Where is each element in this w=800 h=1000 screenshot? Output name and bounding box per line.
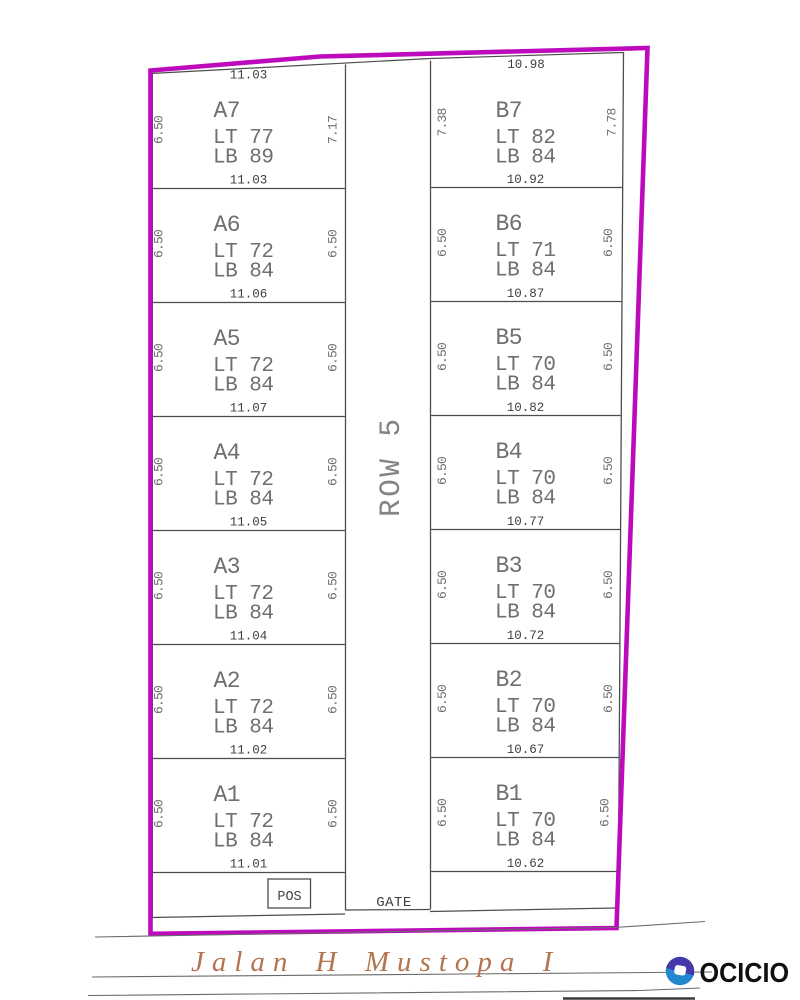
- svg-text:10.67: 10.67: [507, 743, 545, 757]
- svg-text:11.03: 11.03: [230, 174, 268, 188]
- svg-text:10.87: 10.87: [507, 287, 545, 301]
- svg-text:LB 84: LB 84: [495, 147, 556, 170]
- svg-text:6.50: 6.50: [601, 457, 616, 485]
- svg-text:A3: A3: [214, 554, 241, 580]
- svg-text:LB 89: LB 89: [213, 147, 274, 170]
- svg-text:6.50: 6.50: [326, 800, 341, 828]
- svg-text:11.03: 11.03: [230, 69, 268, 83]
- svg-text:POS: POS: [277, 890, 301, 905]
- svg-text:6.50: 6.50: [326, 344, 341, 372]
- svg-text:OCICIO: OCICIO: [700, 957, 790, 989]
- svg-text:11.02: 11.02: [230, 744, 268, 758]
- svg-text:10.82: 10.82: [507, 401, 545, 415]
- svg-text:LB 84: LB 84: [213, 261, 274, 284]
- svg-text:B3: B3: [496, 553, 523, 579]
- svg-text:10.72: 10.72: [507, 629, 545, 643]
- svg-text:A7: A7: [214, 98, 241, 124]
- svg-text:B5: B5: [496, 325, 523, 351]
- svg-text:6.50: 6.50: [435, 799, 450, 827]
- svg-text:ROW 5: ROW 5: [374, 416, 408, 517]
- svg-text:7.38: 7.38: [435, 108, 450, 136]
- svg-text:10.77: 10.77: [507, 515, 545, 529]
- svg-text:6.50: 6.50: [152, 116, 167, 144]
- svg-text:11.01: 11.01: [230, 858, 268, 872]
- svg-text:LB 84: LB 84: [495, 260, 556, 283]
- svg-text:A4: A4: [214, 440, 241, 466]
- svg-text:GATE: GATE: [376, 895, 412, 911]
- svg-text:LB 84: LB 84: [213, 375, 274, 398]
- svg-text:A1: A1: [214, 782, 241, 808]
- svg-text:LB 84: LB 84: [495, 716, 556, 739]
- svg-text:6.50: 6.50: [152, 800, 167, 828]
- svg-text:A6: A6: [214, 212, 241, 238]
- svg-text:LB 84: LB 84: [495, 830, 556, 853]
- svg-text:6.50: 6.50: [152, 686, 167, 714]
- svg-text:A2: A2: [214, 668, 241, 694]
- svg-text:6.50: 6.50: [326, 458, 341, 486]
- svg-text:6.50: 6.50: [601, 343, 616, 371]
- svg-text:6.50: 6.50: [152, 230, 167, 258]
- svg-text:11.07: 11.07: [230, 402, 268, 416]
- svg-text:Jalan H Mustopa I: Jalan H Mustopa I: [191, 946, 560, 978]
- svg-text:B6: B6: [496, 211, 523, 237]
- svg-text:6.50: 6.50: [435, 343, 450, 371]
- svg-text:7.17: 7.17: [326, 116, 341, 144]
- svg-text:6.50: 6.50: [601, 229, 616, 257]
- svg-text:LB 84: LB 84: [213, 603, 274, 626]
- svg-text:LB 84: LB 84: [495, 488, 556, 511]
- svg-text:6.50: 6.50: [152, 458, 167, 486]
- svg-text:7.78: 7.78: [605, 108, 620, 136]
- svg-text:6.50: 6.50: [326, 686, 341, 714]
- svg-text:B1: B1: [496, 781, 523, 807]
- svg-text:6.50: 6.50: [326, 572, 341, 600]
- svg-text:10.92: 10.92: [507, 173, 545, 187]
- svg-text:6.50: 6.50: [598, 799, 613, 827]
- svg-text:6.50: 6.50: [152, 572, 167, 600]
- svg-text:11.05: 11.05: [230, 516, 268, 530]
- svg-text:6.50: 6.50: [435, 571, 450, 599]
- svg-text:10.62: 10.62: [507, 857, 545, 871]
- svg-text:LB 84: LB 84: [213, 831, 274, 854]
- svg-text:B4: B4: [496, 439, 523, 465]
- svg-text:LB 84: LB 84: [213, 489, 274, 512]
- svg-text:A5: A5: [214, 326, 241, 352]
- svg-text:LB 84: LB 84: [495, 602, 556, 625]
- svg-text:6.50: 6.50: [326, 230, 341, 258]
- svg-text:6.50: 6.50: [601, 685, 616, 713]
- svg-text:6.50: 6.50: [435, 229, 450, 257]
- svg-text:LB 84: LB 84: [213, 717, 274, 740]
- svg-text:6.50: 6.50: [435, 457, 450, 485]
- svg-text:6.50: 6.50: [601, 571, 616, 599]
- svg-text:LB 84: LB 84: [495, 374, 556, 397]
- svg-text:6.50: 6.50: [152, 344, 167, 372]
- svg-text:6.50: 6.50: [435, 685, 450, 713]
- svg-text:B2: B2: [496, 667, 523, 693]
- svg-text:11.06: 11.06: [230, 288, 268, 302]
- svg-text:11.04: 11.04: [230, 630, 268, 644]
- svg-text:B7: B7: [496, 98, 523, 124]
- svg-text:10.98: 10.98: [507, 58, 545, 72]
